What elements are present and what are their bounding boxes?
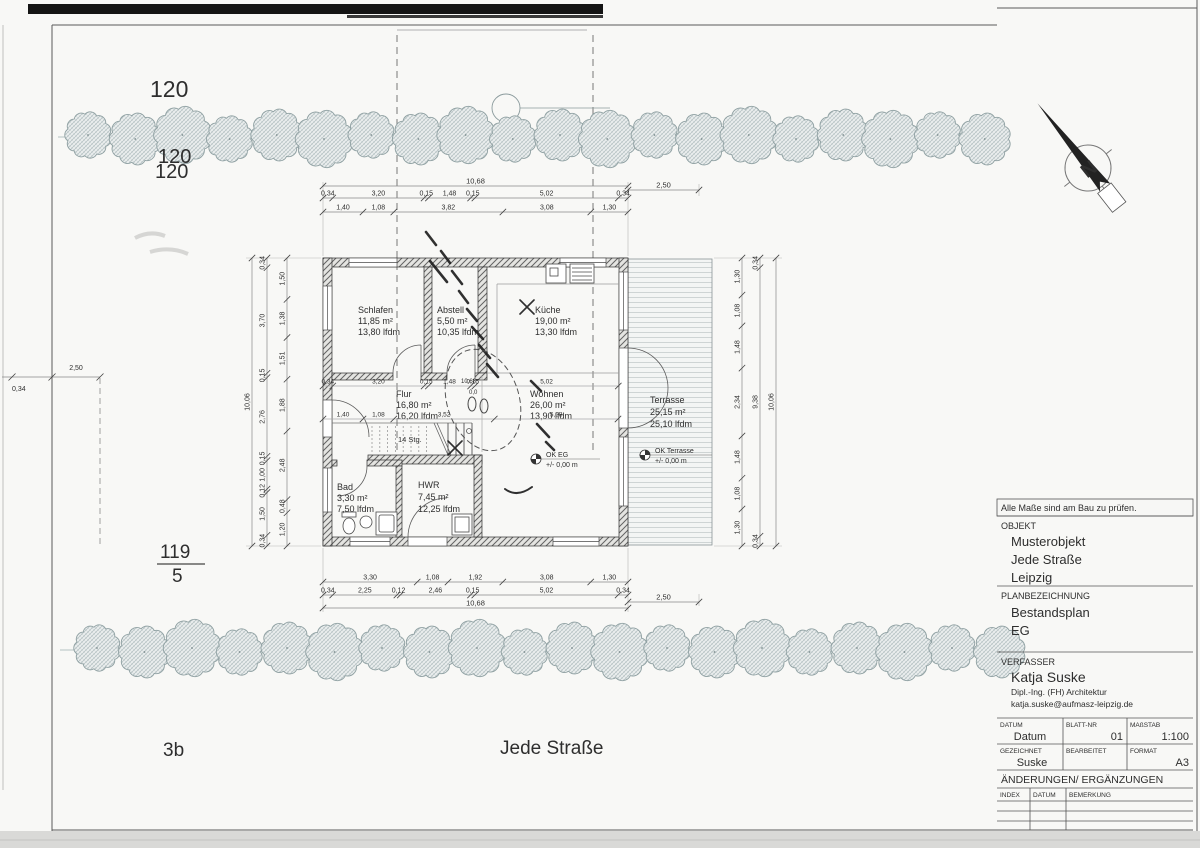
bad-sink bbox=[360, 516, 372, 528]
massstab-value: 1:100 bbox=[1161, 731, 1189, 743]
tree-trunk-dot bbox=[714, 651, 716, 653]
door-entry-opening bbox=[323, 400, 332, 437]
datum-label: DATUM bbox=[1000, 722, 1023, 729]
tree-trunk-dot bbox=[334, 651, 336, 653]
dim-label: 9,38 bbox=[753, 395, 760, 409]
site-plan-drawing: 120 120 120 119 5 3b Jede Straße bbox=[0, 0, 1200, 848]
index-label: INDEX bbox=[1000, 792, 1021, 799]
sketch-small-label: 0,0 bbox=[469, 390, 478, 396]
room-area: 25,15 m² bbox=[650, 407, 686, 417]
dim-label: 2,50 bbox=[656, 593, 671, 602]
dim-label: 10,68 bbox=[466, 599, 485, 608]
dim-label: 0,34 bbox=[260, 256, 267, 270]
dim-label: 0,34 bbox=[321, 191, 335, 198]
dim-label: 1,08 bbox=[735, 304, 742, 318]
tree-trunk-dot bbox=[701, 138, 703, 140]
parcel-label-5: 5 bbox=[172, 566, 183, 587]
format-value: A3 bbox=[1176, 757, 1189, 769]
tree-trunk-dot bbox=[239, 651, 241, 653]
objekt-line3: Leipzig bbox=[1011, 570, 1052, 585]
gezeichnet-label: GEZEICHNET bbox=[1000, 748, 1042, 755]
dim-label: 2,46 bbox=[429, 588, 443, 595]
room-lfdm: 7,50 lfdm bbox=[337, 504, 374, 514]
room-area: 19,00 m² bbox=[535, 316, 571, 326]
level-eg-value: +/- 0,00 m bbox=[546, 462, 578, 469]
tree-trunk-dot bbox=[418, 138, 420, 140]
room-name: Flur bbox=[396, 389, 412, 399]
verfasser-title: Dipl.-Ing. (FH) Architektur bbox=[1011, 687, 1107, 697]
verfasser-label: VERFASSER bbox=[1001, 657, 1056, 667]
toilet-bowl bbox=[343, 518, 355, 534]
kitchen-sink-basin bbox=[550, 268, 558, 276]
dim-label: 2,34 bbox=[735, 395, 742, 409]
shower-tray bbox=[379, 515, 394, 532]
dim-label: 1,88 bbox=[280, 398, 287, 412]
aenderungen-label: ÄNDERUNGEN/ ERGÄNZUNGEN bbox=[1001, 774, 1163, 786]
room-area: 11,85 m² bbox=[358, 316, 393, 326]
dim-label: 2,76 bbox=[260, 410, 267, 424]
dim-label: 1,30 bbox=[603, 205, 617, 212]
room-lfdm: 13,80 lfdm bbox=[358, 327, 400, 337]
plan-sheet: 120 120 120 119 5 3b Jede Straße bbox=[0, 0, 1200, 848]
tree-trunk-dot bbox=[654, 134, 656, 136]
objekt-label: OBJEKT bbox=[1001, 521, 1037, 531]
tree-trunk-dot bbox=[465, 134, 467, 136]
tree-trunk-dot bbox=[524, 651, 526, 653]
blatt-value: 01 bbox=[1111, 731, 1123, 743]
dim-label: 5,08 bbox=[550, 412, 563, 419]
room-lfdm: 12,25 lfdm bbox=[418, 504, 460, 514]
dim-label: 3,20 bbox=[372, 379, 385, 386]
dim-label: 3,20 bbox=[372, 191, 386, 198]
dim-label: 1,48 bbox=[443, 191, 457, 198]
level-eg-label: OK EG bbox=[546, 452, 568, 459]
dim-label: 0,15 bbox=[420, 379, 433, 386]
tree-trunk-dot bbox=[286, 647, 288, 649]
tree-trunk-dot bbox=[182, 134, 184, 136]
datum2-label: DATUM bbox=[1033, 792, 1056, 799]
dim-label: 1,92 bbox=[469, 575, 483, 582]
dim-label: 1,30 bbox=[603, 575, 617, 582]
tree-trunk-dot bbox=[904, 651, 906, 653]
hwr-appliance-inner bbox=[455, 517, 469, 532]
dim-label: 0,34 bbox=[616, 588, 630, 595]
dim-label: 0,12 bbox=[260, 484, 267, 498]
dim-label: 1,30 bbox=[735, 521, 742, 535]
room-name: HWR bbox=[418, 480, 440, 490]
tree-trunk-dot bbox=[229, 138, 231, 140]
room-area: 5,50 m² bbox=[437, 316, 468, 326]
objekt-line1: Musterobjekt bbox=[1011, 534, 1086, 549]
dim-label: 5,02 bbox=[540, 191, 554, 198]
dim-label: 0,34 bbox=[260, 534, 267, 548]
dim-label: 5,02 bbox=[540, 588, 554, 595]
room-name: Schlafen bbox=[358, 305, 393, 315]
dim-label: 1,48 bbox=[735, 450, 742, 464]
room-lfdm: 25,10 lfdm bbox=[650, 419, 692, 429]
tree-trunk-dot bbox=[666, 647, 668, 649]
tree-trunk-dot bbox=[476, 647, 478, 649]
dim-label: 10,06 bbox=[245, 393, 252, 411]
tree-trunk-dot bbox=[429, 651, 431, 653]
level-terrasse-label: OK Terrasse bbox=[655, 448, 694, 455]
room-name: Bad bbox=[337, 482, 353, 492]
wall-hwr-east bbox=[474, 455, 482, 537]
stair-count-label: 14 Stg. bbox=[398, 435, 422, 444]
dim-label: 1,40 bbox=[337, 412, 350, 419]
tree-trunk-dot bbox=[571, 647, 573, 649]
parcel-label-120-ghost2: 120 bbox=[155, 161, 188, 183]
tree-trunk-dot bbox=[984, 138, 986, 140]
room-lfdm: 13,30 lfdm bbox=[535, 327, 577, 337]
dim-label: 1,48 bbox=[735, 340, 742, 354]
tree-trunk-dot bbox=[512, 138, 514, 140]
wall-bad-top-1 bbox=[332, 460, 337, 466]
datum-value: Datum bbox=[1014, 731, 1046, 743]
dim-label: 1,20 bbox=[280, 522, 287, 536]
tree-trunk-dot bbox=[381, 647, 383, 649]
tree-trunk-dot bbox=[890, 138, 892, 140]
blatt-label: BLATT-NR bbox=[1066, 722, 1097, 729]
gezeichnet-value: Suske bbox=[1017, 757, 1048, 769]
room-name: Abstell bbox=[437, 305, 464, 315]
tree-trunk-dot bbox=[606, 138, 608, 140]
door-south-opening bbox=[408, 537, 447, 546]
dim-label: 0,12 bbox=[392, 588, 406, 595]
tree-trunk-dot bbox=[619, 651, 621, 653]
bearbeitet-label: BEARBEITET bbox=[1066, 748, 1106, 755]
room-area: 26,00 m² bbox=[530, 400, 566, 410]
sketch-dim-label: 10,68 bbox=[461, 379, 477, 385]
dim-label: 10,06 bbox=[769, 393, 776, 411]
tree-trunk-dot bbox=[809, 651, 811, 653]
tree-trunk-dot bbox=[842, 134, 844, 136]
dim-label: 1,08 bbox=[372, 412, 385, 419]
parcel-label-120: 120 bbox=[150, 76, 188, 102]
dim-label: 1,08 bbox=[735, 487, 742, 501]
dim-label: 1,40 bbox=[336, 205, 350, 212]
plan-label: PLANBEZEICHNUNG bbox=[1001, 591, 1090, 601]
note-text: Alle Maße sind am Bau zu prüfen. bbox=[1001, 503, 1137, 513]
tree-trunk-dot bbox=[856, 647, 858, 649]
dim-label: 0,34 bbox=[616, 191, 630, 198]
dim-label: 0,15 bbox=[419, 191, 433, 198]
dim-label: 1,08 bbox=[426, 575, 440, 582]
dim-label: 1,50 bbox=[260, 507, 267, 521]
massstab-label: MAßSTAB bbox=[1130, 722, 1160, 729]
tree-trunk-dot bbox=[937, 134, 939, 136]
objekt-line2: Jede Straße bbox=[1011, 552, 1082, 567]
dim-label: 0,48 bbox=[280, 499, 287, 513]
tree-trunk-dot bbox=[87, 134, 89, 136]
tree-trunk-dot bbox=[323, 138, 325, 140]
tree-trunk-dot bbox=[761, 647, 763, 649]
tree-trunk-dot bbox=[134, 138, 136, 140]
dim-label: 0,15 bbox=[466, 588, 480, 595]
dim-label: 1,30 bbox=[735, 270, 742, 284]
dim-label: 1,51 bbox=[280, 351, 287, 365]
dim-label: 0,34 bbox=[753, 256, 760, 270]
dim-label: 2,48 bbox=[280, 458, 287, 472]
dim-label: 0,34 bbox=[753, 534, 760, 548]
dim-label: 2,50 bbox=[69, 365, 83, 372]
verfasser-name: Katja Suske bbox=[1011, 669, 1086, 685]
tree-trunk-dot bbox=[96, 647, 98, 649]
tree-trunk-dot bbox=[748, 134, 750, 136]
room-area: 7,45 m² bbox=[418, 492, 449, 502]
room-name: Wohnen bbox=[530, 389, 563, 399]
dim-label: 1,08 bbox=[372, 205, 386, 212]
plan-line1: Bestandsplan bbox=[1011, 605, 1090, 620]
wall-abstell-kueche bbox=[478, 267, 487, 373]
level-terrasse-value: +/- 0,00 m bbox=[655, 458, 687, 465]
tree-trunk-dot bbox=[795, 138, 797, 140]
verfasser-email: katja.suske@aufmasz-leipzig.de bbox=[1011, 699, 1133, 709]
tree-trunk-dot bbox=[951, 647, 953, 649]
room-lfdm: 16,20 lfdm bbox=[396, 411, 438, 421]
tree-trunk-dot bbox=[559, 134, 561, 136]
room-area: 16,80 m² bbox=[396, 400, 432, 410]
house-number-label: 3b bbox=[163, 740, 184, 761]
dim-label: 5,02 bbox=[540, 379, 553, 386]
dim-label: 3,08 bbox=[540, 205, 554, 212]
format-label: FORMAT bbox=[1130, 748, 1157, 755]
tree-trunk-dot bbox=[144, 651, 146, 653]
dim-label: 3,82 bbox=[442, 205, 456, 212]
room-area: 3,30 m² bbox=[337, 493, 368, 503]
wall-schlafen-abstell bbox=[424, 267, 432, 373]
dim-label: 2,25 bbox=[358, 588, 372, 595]
dim-label: 10,68 bbox=[466, 177, 485, 186]
dim-label: 2,50 bbox=[656, 181, 671, 190]
dim-label: 3,08 bbox=[540, 575, 554, 582]
scan-edge-bar bbox=[28, 4, 603, 14]
dim-label: 1,38 bbox=[280, 312, 287, 326]
room-name: Küche bbox=[535, 305, 561, 315]
scan-edge-bar-2 bbox=[347, 15, 603, 18]
dim-label: 1,50 bbox=[280, 272, 287, 286]
dim-label: 0,34 bbox=[12, 386, 26, 393]
wall-bad-top-2 bbox=[367, 460, 402, 466]
bemerkung-label: BEMERKUNG bbox=[1069, 792, 1111, 799]
dim-label: 0,34 bbox=[322, 379, 335, 386]
tree-trunk-dot bbox=[370, 134, 372, 136]
plan-line2: EG bbox=[1011, 623, 1030, 638]
tree-trunk-dot bbox=[191, 647, 193, 649]
dim-label: 0,15 bbox=[260, 452, 267, 466]
dim-label: 3,30 bbox=[363, 575, 377, 582]
dim-label: 0,15 bbox=[466, 191, 480, 198]
parcel-label-119: 119 bbox=[160, 542, 190, 563]
door-terrace-opening bbox=[619, 348, 628, 428]
dim-label: 1,00 bbox=[260, 468, 267, 482]
room-name: Terrasse bbox=[650, 395, 685, 405]
tree-trunk-dot bbox=[276, 134, 278, 136]
dim-label: 0,34 bbox=[321, 588, 335, 595]
dim-label: 0,15 bbox=[260, 369, 267, 383]
dim-label: 3,70 bbox=[260, 314, 267, 328]
street-name-label: Jede Straße bbox=[500, 738, 604, 759]
